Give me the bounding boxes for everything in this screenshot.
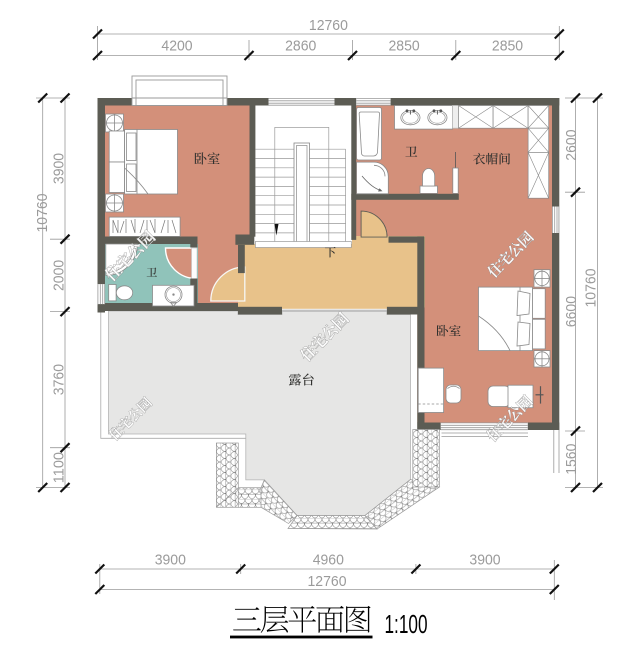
svg-text:3900: 3900 — [155, 552, 186, 569]
svg-text:3900: 3900 — [469, 552, 500, 569]
svg-text:1:100: 1:100 — [385, 611, 428, 639]
svg-text:10760: 10760 — [34, 194, 51, 233]
svg-text:2000: 2000 — [51, 260, 68, 291]
svg-text:12760: 12760 — [309, 17, 348, 34]
svg-text:3900: 3900 — [51, 153, 68, 184]
svg-text:2850: 2850 — [389, 38, 420, 55]
svg-text:2860: 2860 — [285, 38, 316, 55]
svg-text:4960: 4960 — [313, 552, 344, 569]
svg-text:2600: 2600 — [563, 130, 580, 161]
svg-text:10760: 10760 — [583, 269, 600, 308]
svg-text:12760: 12760 — [308, 573, 347, 590]
svg-text:1560: 1560 — [563, 444, 580, 475]
svg-text:4200: 4200 — [161, 38, 192, 55]
svg-text:1100: 1100 — [51, 452, 68, 483]
svg-text:3760: 3760 — [51, 364, 68, 395]
svg-text:2850: 2850 — [492, 38, 523, 55]
svg-text:6600: 6600 — [563, 296, 580, 327]
